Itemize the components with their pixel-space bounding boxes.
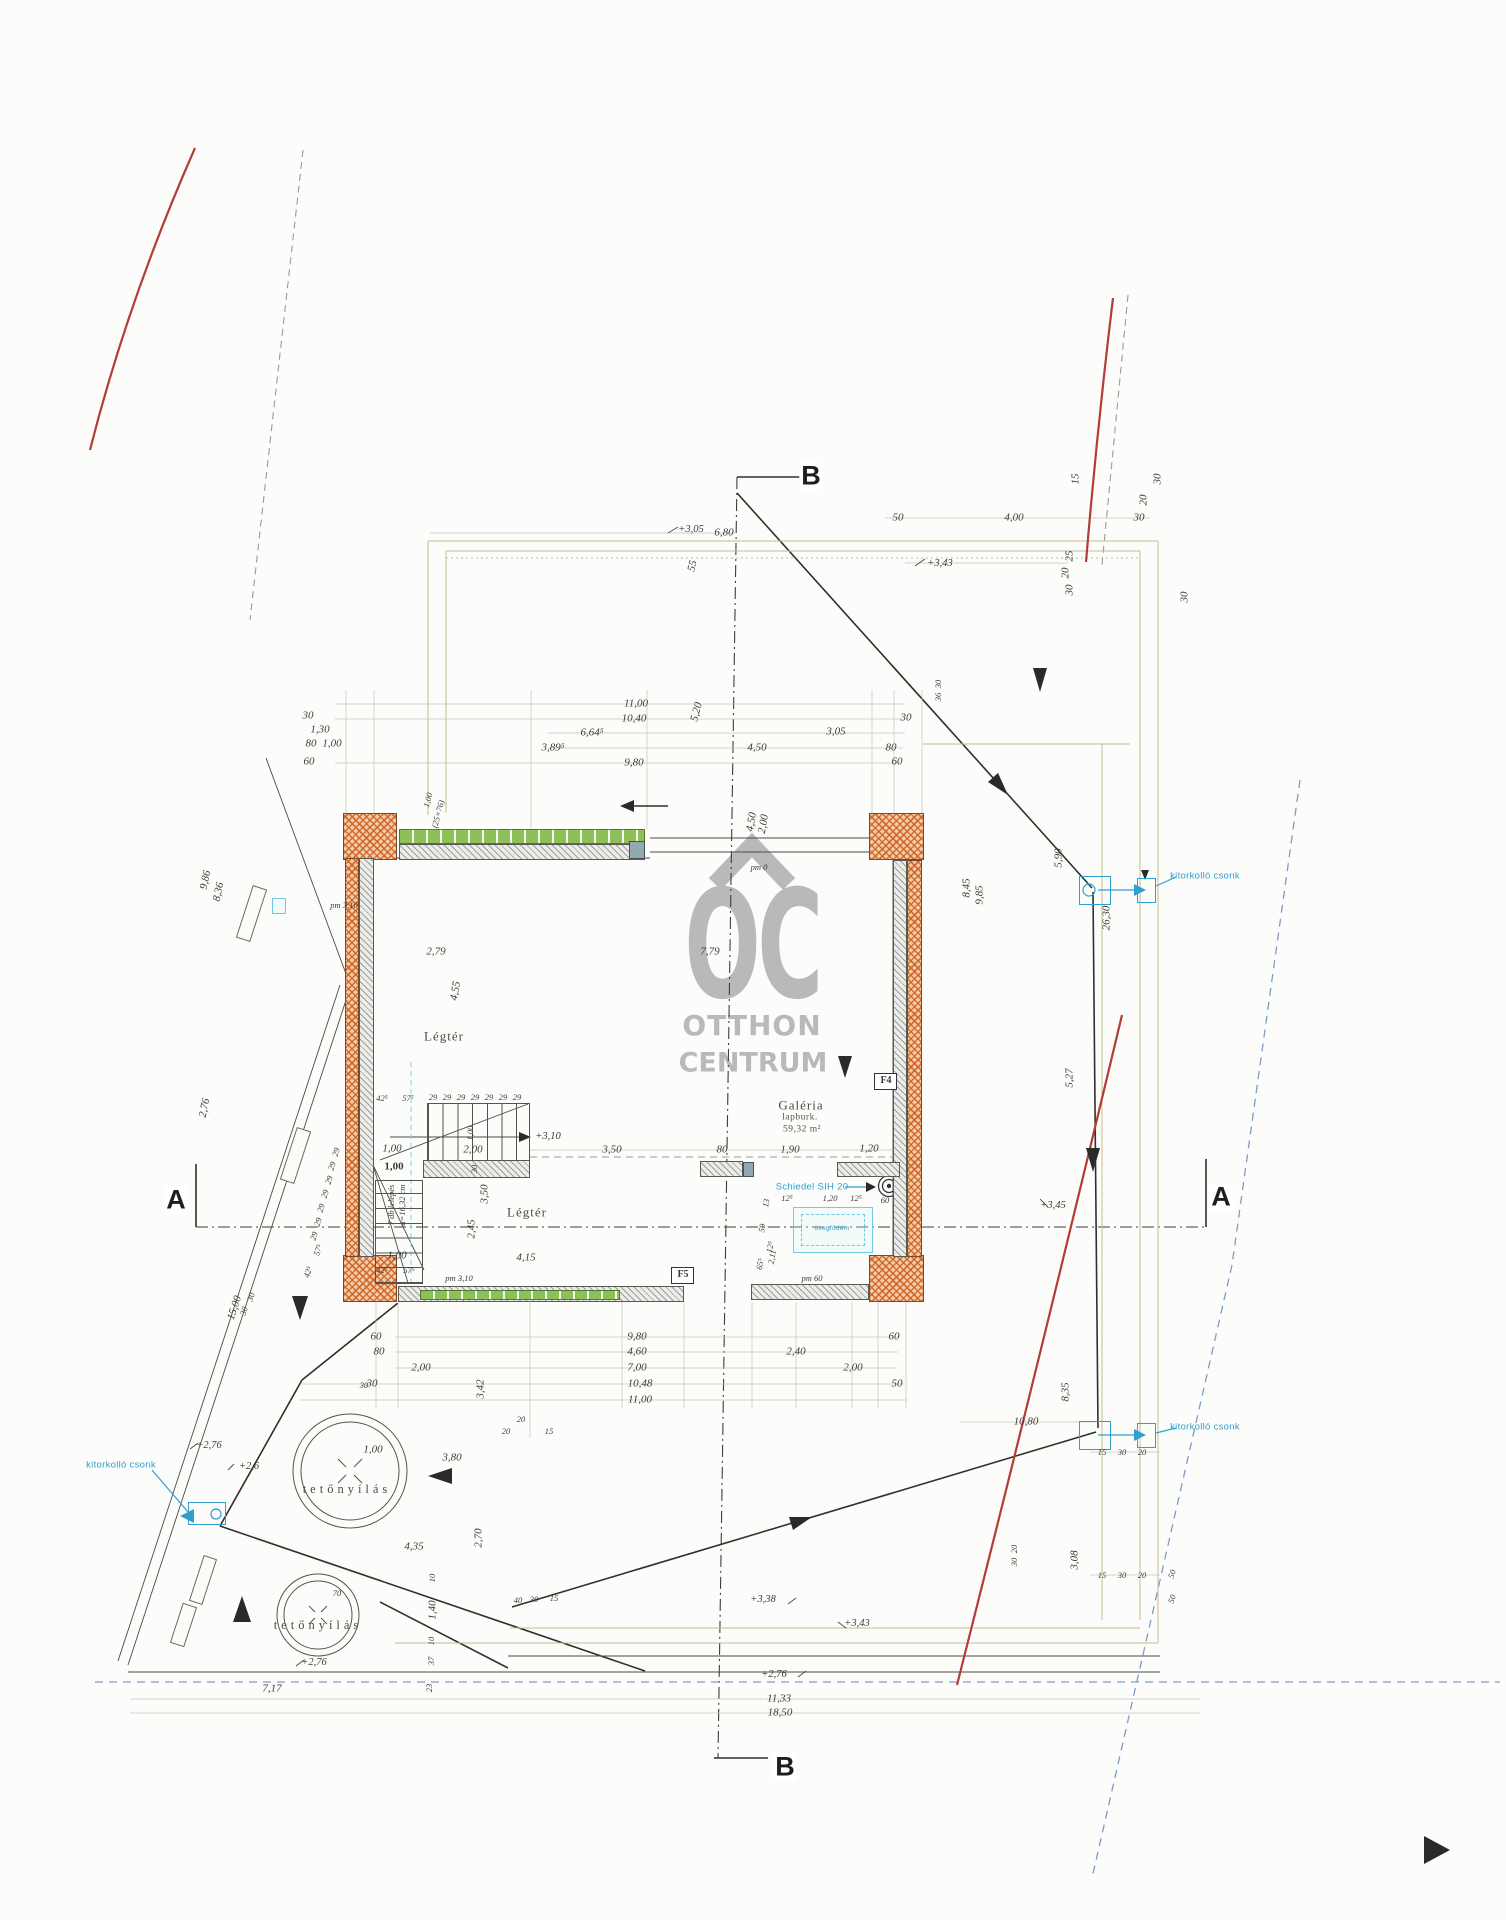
- dim-label: 1,20: [859, 1144, 878, 1155]
- floor-plan-sheet: OC OTTHON CENTRUM BBAA6,80504,0030+3,43+…: [0, 0, 1506, 1920]
- dim-label: 20: [1138, 1448, 1147, 1457]
- room-area-label: 59,32 m²: [783, 1125, 821, 1135]
- level-label: +3,10: [535, 1132, 560, 1143]
- dim-label: 57⁵: [403, 1266, 414, 1275]
- stair-note: 7 db lelépés: [387, 1185, 396, 1226]
- dim-label: 4,55: [449, 981, 463, 1002]
- dim-label: 25: [1065, 551, 1076, 562]
- dim-label: 7,00: [627, 1363, 646, 1374]
- dim-label: 2,00: [463, 1145, 482, 1156]
- dim-label: 4,00: [1004, 513, 1023, 524]
- dim-label: 30: [1153, 474, 1164, 485]
- level-label: +3,43: [927, 559, 952, 570]
- dim-label: 29: [327, 1161, 338, 1172]
- dim-label: 26,30: [1102, 906, 1113, 931]
- dim-label: 30: [246, 1292, 257, 1303]
- dim-label: 2,45: [467, 1219, 478, 1238]
- dim-label: 9,86: [199, 869, 214, 890]
- annotation-kitorkollo: kitorkolló csonk: [1170, 1422, 1240, 1432]
- dim-label: 1,00: [422, 792, 434, 809]
- dim-label: 18,50: [768, 1708, 793, 1719]
- dim-label: 29: [324, 1175, 335, 1186]
- dim-label: 37: [427, 1657, 436, 1666]
- dim-label: 3,08: [1070, 1550, 1081, 1569]
- level-label: +2,76: [301, 1658, 326, 1669]
- dim-label: 11,00: [628, 1395, 652, 1406]
- dim-label: 80: [306, 739, 317, 750]
- dim-label: 30: [530, 1595, 539, 1604]
- dim-label: 30: [470, 1165, 479, 1174]
- dim-label: 11,33: [767, 1694, 791, 1705]
- dim-label: 30: [239, 1306, 250, 1317]
- section-marker-b-top: B: [799, 463, 823, 490]
- dim-label: 2,00: [411, 1363, 430, 1374]
- dim-label: 20: [1139, 495, 1150, 506]
- section-marker-a-right: A: [1209, 1184, 1233, 1211]
- dim-label: 30: [1118, 1571, 1127, 1580]
- dim-label: 2,79: [426, 947, 445, 958]
- dim-label: 20: [517, 1415, 526, 1424]
- dim-label: 4,35: [404, 1542, 423, 1553]
- dim-label: 70: [333, 1589, 342, 1598]
- dim-label: 1,00: [384, 1162, 403, 1173]
- dim-label: 15: [545, 1427, 554, 1436]
- dim-label: 2,00: [843, 1363, 862, 1374]
- dim-label: 80: [886, 743, 897, 754]
- dim-label: 20: [502, 1427, 511, 1436]
- dim-label: 30: [303, 711, 314, 722]
- room-label-tetonyilas: tetőnyílás: [303, 1483, 392, 1496]
- dim-label: 29: [313, 1217, 324, 1228]
- dim-label: 9,80: [627, 1332, 646, 1343]
- dim-label: 7,79: [700, 947, 719, 958]
- labels-layer: BBAA6,80504,0030+3,43+3,0525203015302055…: [0, 0, 1506, 1920]
- dim-label: 1,00: [363, 1445, 382, 1456]
- dim-label: 3,05: [826, 727, 845, 738]
- dim-label: 5,20: [689, 701, 705, 722]
- dim-label: 30: [1065, 585, 1076, 596]
- dim-label: 30: [1180, 592, 1191, 603]
- dim-label: 50: [893, 513, 904, 524]
- f4-label: F4: [880, 1076, 891, 1086]
- dim-label: 30: [1134, 513, 1145, 524]
- dim-label: 30: [1118, 1448, 1127, 1457]
- dim-label: pm 60: [801, 1274, 822, 1283]
- dim-label: 8,36: [212, 881, 227, 902]
- dim-label: 1,00: [466, 1126, 475, 1141]
- dim-label: 57⁵: [312, 1243, 324, 1257]
- dim-label: 29: [309, 1231, 320, 1242]
- dim-label: 2,76: [198, 1097, 213, 1118]
- dim-label: 1,90: [780, 1145, 799, 1156]
- dim-label: 4,50: [747, 743, 766, 754]
- dim-label: 29: [316, 1203, 327, 1214]
- dim-label: 60: [371, 1332, 382, 1343]
- dim-label: 6,80: [714, 528, 733, 539]
- section-marker-b-bottom: B: [773, 1754, 797, 1781]
- dim-label: 40: [514, 1596, 523, 1605]
- dim-label: 23: [425, 1684, 434, 1693]
- annotation-kitorkollo: kitorkolló csonk: [86, 1460, 156, 1470]
- dim-label: 30: [1010, 1558, 1019, 1567]
- room-label-legter: Légtér: [507, 1206, 547, 1219]
- dim-label: 3,89⁵: [541, 743, 564, 754]
- annotation-kitorkollo: kitorkolló csonk: [1170, 871, 1240, 881]
- dim-label: 10: [428, 1574, 437, 1583]
- dim-label: 5,27: [1065, 1068, 1076, 1087]
- dim-label: 42⁵: [376, 1266, 387, 1275]
- level-label: +3,45: [1040, 1201, 1065, 1212]
- room-label-tetonyilas: tetőnyílás: [274, 1619, 363, 1632]
- dim-label: 30: [934, 680, 943, 689]
- dim-label: 9,80: [624, 758, 643, 769]
- dim-label: 7,17: [262, 1684, 281, 1695]
- room-finish-label: lapburk.: [782, 1113, 817, 1123]
- dim-label: 11,00: [624, 699, 648, 710]
- dim-label: 60: [881, 1196, 890, 1205]
- dim-label: 55: [686, 559, 699, 572]
- dim-label: 6,64⁵: [580, 728, 603, 739]
- dim-label: pm 3,10: [445, 1274, 472, 1283]
- dim-label: 15: [550, 1594, 559, 1603]
- dim-label: 5,90: [1054, 848, 1065, 867]
- dim-label: 42⁵: [376, 1094, 387, 1103]
- dim-label: 36: [934, 693, 943, 702]
- dim-label: 13: [761, 1198, 771, 1208]
- dim-label: 1,30: [310, 725, 329, 736]
- dim-label: 2,40: [786, 1347, 805, 1358]
- dim-label: 60: [892, 757, 903, 768]
- dim-label: 60: [889, 1332, 900, 1343]
- dim-label: 29: [331, 1147, 342, 1158]
- dim-label: 30: [360, 1381, 369, 1390]
- level-label: +2,6: [239, 1462, 259, 1473]
- dim-label: 1,20: [823, 1194, 838, 1203]
- dim-label: 29: [429, 1093, 438, 1102]
- dim-label: 1,40: [428, 1600, 439, 1619]
- dim-label: pm 3,10: [330, 901, 357, 910]
- dim-label: 8,35: [1061, 1382, 1072, 1401]
- dim-label: 15: [1098, 1571, 1107, 1580]
- room-label-galeria: Galéria: [778, 1099, 823, 1112]
- dim-label: 29: [457, 1093, 466, 1102]
- dim-label: (25×76): [430, 799, 446, 829]
- dim-label: 12⁵: [781, 1194, 792, 1203]
- dim-label: 29: [320, 1189, 331, 1200]
- dim-label: 57⁵: [402, 1094, 413, 1103]
- level-label: +3,43: [844, 1619, 869, 1630]
- dim-label: 3,50: [602, 1145, 621, 1156]
- dim-label: 50: [1167, 1569, 1178, 1580]
- dim-label: 2,00: [757, 814, 771, 835]
- room-label-legter: Légtér: [424, 1030, 464, 1043]
- dim-label: 29: [443, 1093, 452, 1102]
- dim-label: 4,60: [627, 1347, 646, 1358]
- dim-label: 42⁵: [302, 1265, 314, 1279]
- dim-label: 4,15: [516, 1253, 535, 1264]
- dim-label: 10,40: [622, 714, 647, 725]
- dim-label: 80: [374, 1347, 385, 1358]
- annotation-uvegfodem: üvegfödém: [815, 1226, 850, 1233]
- dim-label: 50: [892, 1379, 903, 1390]
- dim-label: 29: [485, 1093, 494, 1102]
- f5-label: F5: [677, 1270, 688, 1280]
- dim-label: 29: [513, 1093, 522, 1102]
- section-marker-a-left: A: [164, 1187, 188, 1214]
- dim-label: 8,45: [962, 878, 973, 897]
- dim-label: 3,42: [476, 1379, 487, 1398]
- dim-label: 10,80: [1014, 1417, 1039, 1428]
- dim-label: 20: [1061, 568, 1072, 579]
- dim-label: 65⁵: [755, 1258, 765, 1271]
- dim-label: 10,48: [628, 1379, 653, 1390]
- dim-label: 80: [717, 1145, 728, 1156]
- dim-label: 1,00: [387, 1251, 406, 1262]
- dim-label: 59: [757, 1223, 767, 1233]
- dim-label: 3,50: [480, 1184, 491, 1203]
- stair-note: a=16,32 cm: [398, 1184, 407, 1225]
- level-label: +2,76: [761, 1670, 786, 1681]
- dim-label: pm 0: [751, 863, 768, 872]
- dim-label: 29: [499, 1093, 508, 1102]
- dim-label: 3,80: [442, 1453, 461, 1464]
- level-label: +3,05: [678, 525, 703, 536]
- dim-label: 20: [1138, 1571, 1147, 1580]
- dim-label: 60: [304, 757, 315, 768]
- dim-label: 1,00: [382, 1144, 401, 1155]
- dim-label: 2,11: [767, 1249, 778, 1265]
- dim-label: 20: [1010, 1545, 1019, 1554]
- level-label: +2,76: [196, 1441, 221, 1452]
- level-label: +3,38: [750, 1595, 775, 1606]
- dim-label: 30: [901, 713, 912, 724]
- dim-label: 12⁵: [850, 1194, 861, 1203]
- dim-label: 2,70: [474, 1528, 485, 1547]
- dim-label: 50: [1167, 1594, 1178, 1605]
- dim-label: 9,85: [975, 885, 986, 904]
- dim-label: 15: [1071, 474, 1082, 485]
- dim-label: 1,00: [322, 739, 341, 750]
- dim-label: 15: [1098, 1448, 1107, 1457]
- dim-label: 29: [471, 1093, 480, 1102]
- dim-label: 10: [427, 1637, 436, 1646]
- annotation-schiedel: Schiedel SIH 20: [776, 1182, 849, 1192]
